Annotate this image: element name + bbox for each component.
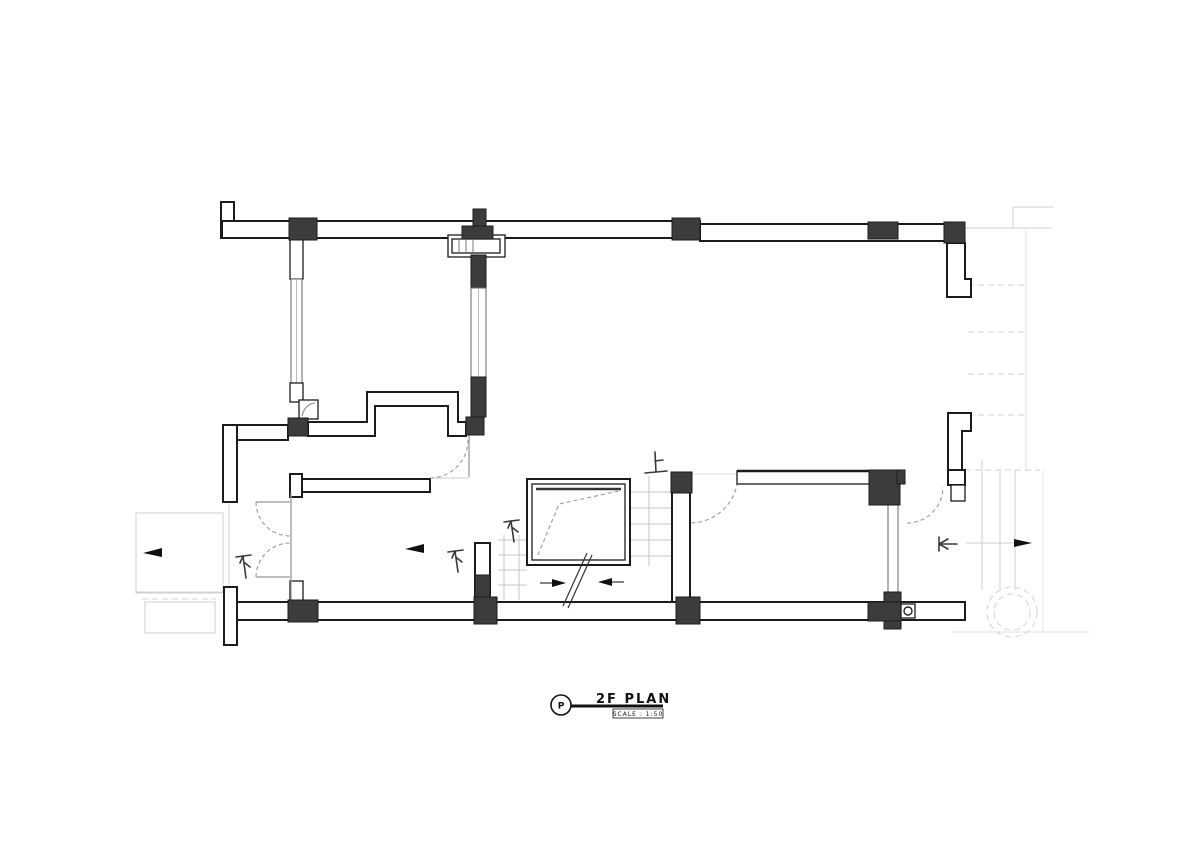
lower-left-interior-wall [290,474,430,497]
column [288,600,318,622]
column [288,418,308,436]
column [289,218,317,240]
door-swing-arc [256,543,290,577]
floor-plan-sheet: P 2F PLAN SCALE : 1:50 [0,0,1200,848]
arrow-left-icon [405,544,424,553]
arrow-left-tick-icon [939,537,957,551]
bedroom-door [430,434,469,478]
bottom-exterior-wall [224,581,965,645]
round-fixture-inner [994,594,1030,630]
arrow-right-icon [1014,539,1032,547]
double-door-left [256,493,291,600]
exterior-reference-top-right [965,207,1053,470]
stepped-alcove-wall [308,392,466,436]
bottom-wall-stub [475,543,490,600]
right-exterior-wall [947,243,971,501]
break-arrow-right-icon [552,579,566,587]
middle-partition-wall [448,235,505,417]
exterior-terrace-bottom-right [952,460,1090,637]
column [897,470,905,484]
door-swing-arc [690,475,738,523]
floor-plan-canvas: P 2F PLAN SCALE : 1:50 [0,0,1200,848]
left-wall [223,425,288,502]
stairwell-inner [532,484,625,560]
exterior-steps-right [965,285,1040,470]
title-block: P 2F PLAN SCALE : 1:50 [551,692,671,718]
up-label [645,452,667,473]
door-swing-arc [256,502,290,536]
column [868,602,901,621]
wall-end-cap [224,587,237,645]
break-arrow-left-icon [598,578,612,586]
stairwell [527,479,630,565]
niche-box [299,400,318,419]
scale-label: SCALE : 1:50 [613,711,664,718]
balcony-outline-left [136,502,229,633]
door-pivot-icon [904,607,912,615]
title-marker-letter: P [558,702,565,712]
wall-pier [290,239,303,279]
down-label [236,555,251,578]
down-label [504,520,519,542]
column [466,417,484,435]
door-swing-arc [907,487,943,523]
solid-wall-segment [471,255,486,288]
column [672,218,700,240]
left-partition-wall [290,239,318,419]
column [869,470,900,505]
column [676,597,700,624]
column [868,222,898,239]
column [944,222,965,243]
wall-pier [951,485,965,501]
arrow-left-icon [143,548,162,557]
wall-end-cap [290,474,302,497]
down-label [448,550,463,572]
wall-pier [948,470,965,485]
wall-pier [947,243,971,297]
column [474,597,497,624]
drawing-title: 2F PLAN [596,692,671,707]
column [462,226,493,239]
wall-pier [948,413,971,470]
top-exterior-wall [221,202,945,241]
wall-pier [290,383,303,402]
column [473,209,486,228]
door-swing-arc [430,440,468,478]
wall-stub [290,581,303,602]
column [671,472,692,493]
solid-wall-segment [471,377,486,417]
